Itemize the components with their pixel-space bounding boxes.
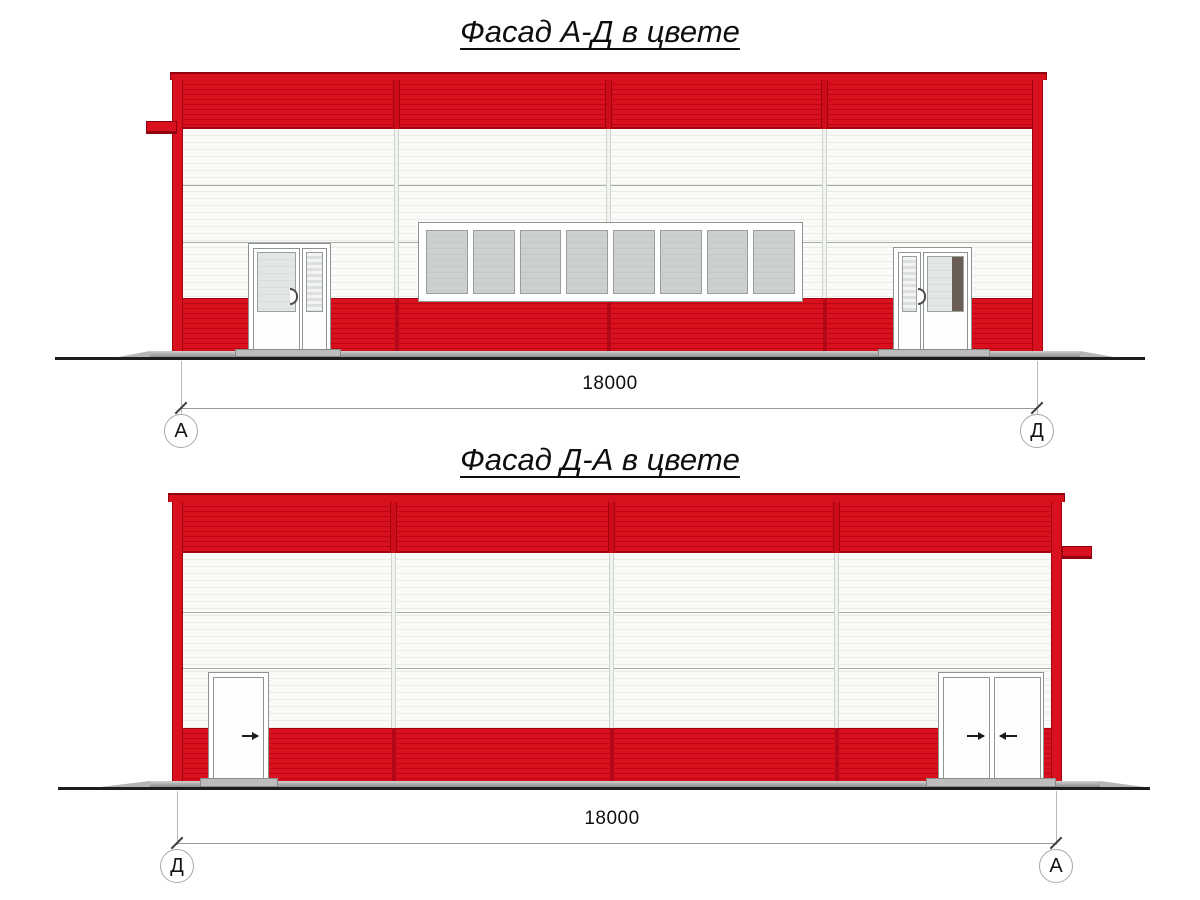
bay-mullion [605,80,612,129]
window-pane [707,230,749,294]
axis-letter: Д [170,855,184,878]
door-glass [902,256,917,312]
bay-mullion [608,502,615,553]
facade-da-view: Фасад Д-А в цвете 18000 Д А [0,440,1200,900]
bay-mullion [391,553,396,728]
dimension-label: 18000 [452,808,772,830]
wall-top-red-band [176,502,1062,553]
door-step [235,349,341,357]
door-leaf [994,677,1041,779]
witness-line [177,791,178,845]
bay-mullion [393,80,400,129]
window-pane [520,230,562,294]
entrance-door-left [248,243,331,355]
door-step [878,349,990,357]
window-pane [753,230,795,294]
axis-letter: А [1049,855,1062,878]
bay-mullion [609,553,614,728]
corner-column-right [1032,80,1043,352]
bay-mullion [823,298,827,352]
window-pane [613,230,655,294]
door-step [200,778,278,787]
corner-column-right [1051,502,1062,786]
axis-marker-a: А [1039,849,1073,883]
window-pane [566,230,608,294]
bay-mullion [834,553,839,728]
bay-mullion [821,80,828,129]
roof-cap [170,72,1047,80]
door-swing-arrow [967,735,984,737]
bay-mullion [394,129,399,298]
door-swing-arrow [1000,735,1017,737]
dimension-line [177,843,1056,844]
bay-mullion [610,728,614,786]
door-dark-pane [952,257,963,311]
door-step [926,778,1056,787]
door-leaf [213,677,264,779]
gutter-outlet-right [1062,546,1092,559]
wall-white-band [176,553,1062,728]
door-leaf [943,677,990,779]
witness-line [1056,791,1057,845]
window-strip [418,222,803,302]
ground-line [55,357,1145,360]
entrance-door-right [893,247,972,355]
bay-mullion [822,129,827,298]
dimension-label: 18000 [450,373,770,395]
bay-mullion [395,298,399,352]
door-leaf [302,248,327,350]
door-swing-arrow [242,735,258,737]
facade-ad-view: Фасад А-Д в цвете [0,0,1200,440]
panel-joint-line [176,668,1062,669]
bay-mullion [833,502,840,553]
facade-ad-title: Фасад А-Д в цвете [460,14,740,49]
window-pane [660,230,702,294]
entrance-door-single [208,672,269,784]
entrance-door-double [938,672,1044,784]
bay-mullion [392,728,396,786]
gutter-outlet-left [146,121,177,134]
door-glass [306,252,323,312]
facade-ad-title-row: Фасад А-Д в цвете [0,14,1200,50]
roof-cap [168,493,1065,502]
door-leaf [923,252,968,350]
bay-mullion [390,502,397,553]
facade-da-title-row: Фасад Д-А в цвете [0,442,1200,478]
panel-joint-line [176,612,1062,613]
dimension-line [181,408,1037,409]
facade-da-title: Фасад Д-А в цвете [460,442,740,477]
bay-mullion [835,728,839,786]
drawing-canvas: { "facade_top": { "title": "Фасад А-Д в … [0,0,1200,900]
window-pane [473,230,515,294]
bay-mullion [607,298,611,352]
corner-column-left [172,502,183,786]
ground-line [58,787,1150,790]
window-pane [426,230,468,294]
axis-marker-d: Д [160,849,194,883]
